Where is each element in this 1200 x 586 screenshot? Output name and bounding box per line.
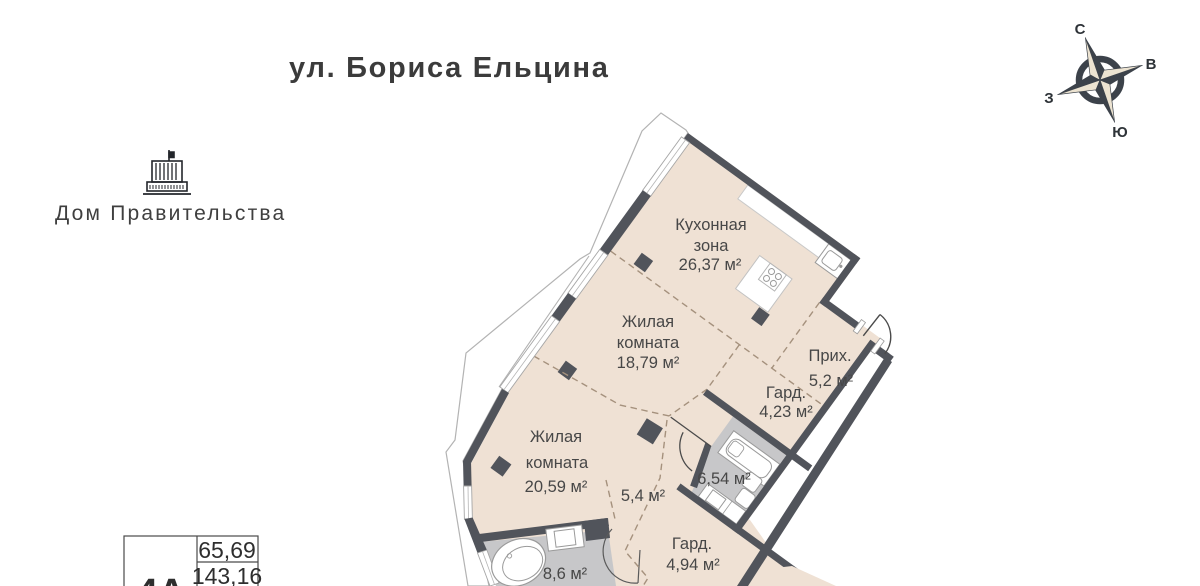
svg-text:5,2 м²: 5,2 м² <box>809 372 854 390</box>
svg-text:26,37 м²: 26,37 м² <box>679 256 742 274</box>
svg-text:Жилая: Жилая <box>622 313 674 331</box>
svg-text:4,23 м²: 4,23 м² <box>759 403 813 421</box>
svg-text:Жилая: Жилая <box>530 428 582 446</box>
svg-text:З: З <box>1044 90 1053 107</box>
svg-text:18,79 м²: 18,79 м² <box>617 354 680 372</box>
svg-text:65,69: 65,69 <box>198 537 256 563</box>
svg-text:5,4 м²: 5,4 м² <box>621 487 666 505</box>
svg-text:4,94 м²: 4,94 м² <box>666 556 720 574</box>
svg-text:Ю: Ю <box>1112 124 1127 141</box>
svg-text:20,59 м²: 20,59 м² <box>525 478 588 496</box>
svg-text:8,6 м²: 8,6 м² <box>543 565 588 583</box>
svg-text:6,54 м²: 6,54 м² <box>697 470 751 488</box>
svg-text:Кухонная: Кухонная <box>675 216 746 234</box>
svg-text:143,16: 143,16 <box>192 563 262 586</box>
svg-text:Прих.: Прих. <box>808 347 851 365</box>
svg-text:зона: зона <box>694 237 730 255</box>
svg-text:4А: 4А <box>137 572 186 586</box>
svg-text:В: В <box>1146 56 1157 73</box>
svg-text:комната: комната <box>617 334 680 352</box>
svg-text:С: С <box>1075 21 1086 38</box>
svg-text:Гард.: Гард. <box>766 384 806 402</box>
svg-text:Гард.: Гард. <box>672 535 712 553</box>
svg-text:комната: комната <box>526 454 589 472</box>
